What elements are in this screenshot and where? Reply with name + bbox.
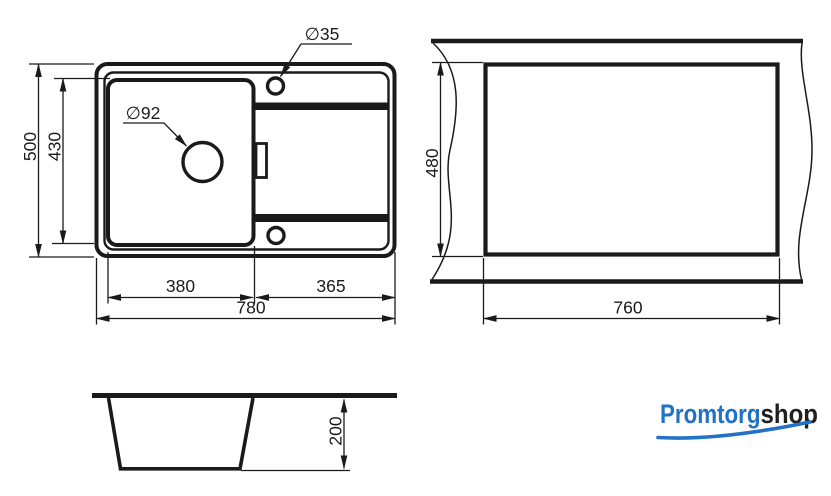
tap-hole-top	[268, 78, 284, 94]
drainboard-ridge-top	[255, 103, 390, 111]
dimension-label-overall-width: 780	[236, 298, 265, 318]
leader-arrow-drain-hole	[164, 123, 187, 146]
dimension-label-cutout-depth: 480	[422, 148, 442, 177]
break-line-right	[799, 43, 812, 280]
dimension-label-bowl-width: 380	[166, 276, 195, 296]
sink-section-view: 200	[92, 396, 397, 471]
technical-drawing-canvas: 500 430 380 365 780 ∅92 ∅35	[0, 0, 831, 496]
logo-text-primary: Promtorg	[660, 399, 761, 429]
section-bowl-profile	[109, 398, 254, 469]
sink-dimension-drawing-page: 500 430 380 365 780 ∅92 ∅35	[0, 0, 831, 496]
drain-hole	[183, 143, 222, 182]
tap-hole-bottom	[268, 228, 284, 244]
sink-inner-rim	[105, 73, 389, 250]
sink-top-view: 500 430 380 365 780 ∅92 ∅35	[20, 24, 395, 325]
sink-outer-edge	[97, 64, 395, 256]
dimension-label-cutout-width: 760	[613, 298, 642, 318]
dimension-label-bowl-height: 200	[326, 416, 346, 445]
drainboard-ridge-bottom	[255, 214, 390, 222]
cutout-rectangle	[486, 65, 778, 255]
dimension-label-bowl-depth: 430	[45, 132, 65, 161]
overflow-notch	[256, 144, 267, 178]
tap-hole-diameter-label: ∅35	[305, 24, 340, 44]
countertop-cutout-view: 480 760	[422, 41, 812, 325]
promtorgshop-logo: Promtorg shop	[658, 399, 818, 438]
dimension-label-wing-width: 365	[316, 276, 345, 296]
drain-hole-diameter-label: ∅92	[126, 103, 161, 123]
dimension-label-overall-depth: 500	[20, 132, 40, 161]
